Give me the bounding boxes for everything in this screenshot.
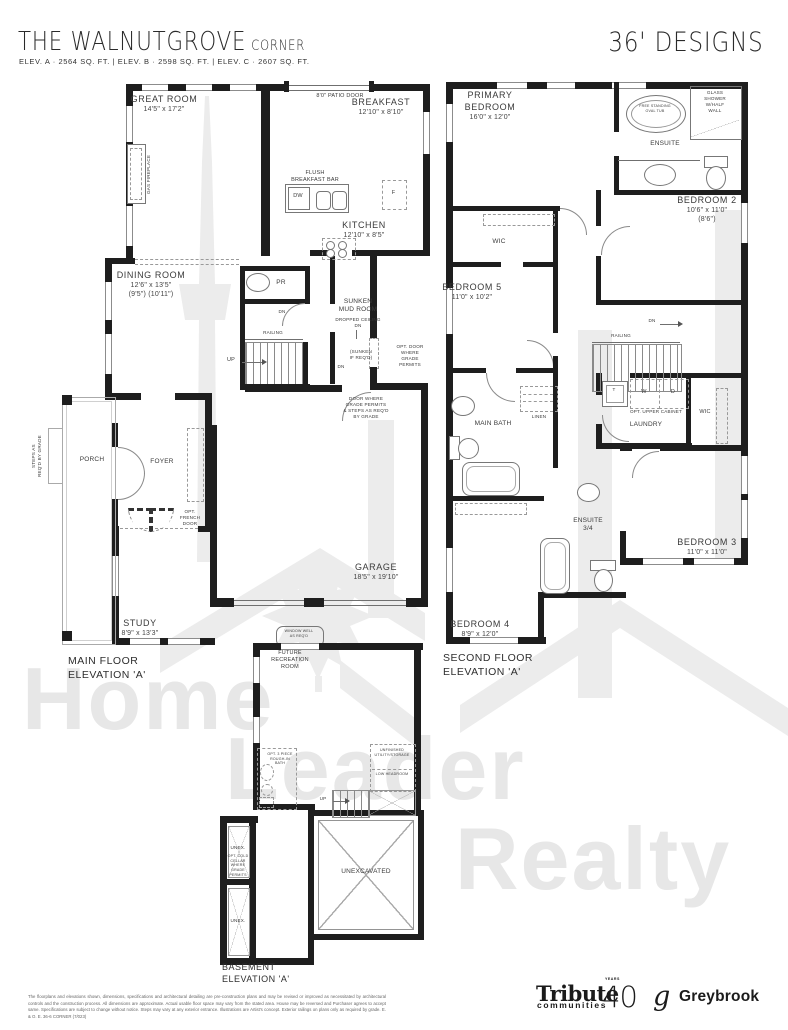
- garage-label: GARAGE: [341, 562, 411, 574]
- wic-primary-label: WIC: [482, 238, 516, 246]
- great-room-dims: 14'5" x 17'2": [124, 105, 204, 114]
- washer-label: W: [630, 389, 658, 396]
- dn-stair-label: DN: [330, 364, 352, 370]
- main-bath-sink: [451, 396, 475, 416]
- greybrook-mark: g: [653, 981, 670, 1012]
- line: [289, 85, 369, 86]
- fixture: [594, 569, 613, 592]
- bedroom4-closet: [455, 503, 527, 515]
- floorplan-sheet: Home Leader Realty THE WALNUTGROVECORNER…: [0, 0, 788, 1030]
- wall: [620, 531, 626, 564]
- oval-tub-label: FREE STANDING OVAL TUB: [628, 104, 682, 113]
- opt-bath-label: OPT. 3 PIECE ROUGH-IN BATH: [266, 752, 294, 766]
- window-marker: [741, 456, 748, 494]
- fixture: [338, 249, 347, 258]
- window-marker: [253, 717, 260, 743]
- wall: [261, 84, 270, 256]
- dishwasher-label: DW: [288, 193, 308, 200]
- wall: [406, 598, 428, 607]
- window-marker: [694, 558, 734, 565]
- line: [289, 90, 369, 91]
- future-rec-room-label: FUTURE RECREATION ROOM: [262, 650, 318, 671]
- window-marker: [142, 84, 168, 91]
- opt-french-door-label: OPT. FRENCH DOOR: [172, 509, 208, 527]
- bedroom5-dims: 11'0" x 10'2": [432, 293, 512, 302]
- window-marker: [643, 558, 683, 565]
- disclaimer-text: The floorplans and elevations shown, dim…: [28, 994, 386, 1021]
- bedroom2-dims-alt: (8'6"): [662, 215, 752, 224]
- dashed-line: [135, 259, 239, 260]
- fixture: [66, 401, 112, 641]
- stair-railing-line: [592, 342, 680, 343]
- wall: [446, 368, 486, 373]
- watermark-word-realty: Realty: [455, 808, 731, 910]
- great-room-label: GREAT ROOM: [124, 94, 204, 106]
- line: [324, 600, 406, 601]
- fixture: [544, 542, 566, 590]
- powder-room-label: PR: [261, 279, 301, 287]
- primary-bedroom-dims: 16'0" x 12'0": [455, 113, 525, 122]
- foyer-label: FOYER: [139, 458, 185, 466]
- railing-label: RAILING: [248, 330, 298, 336]
- porch-post: [62, 631, 72, 641]
- ensuite-label: ENSUITE: [638, 140, 692, 148]
- series-title: 36' DESIGNS: [609, 27, 764, 58]
- door-grade-label: DOOR WHERE GRADE PERMITS & STEPS AS REQ'…: [334, 396, 398, 420]
- dining-room-label: DINING ROOM: [108, 270, 194, 282]
- mud-room-label: SUNKEN MUD ROOM: [325, 298, 391, 315]
- elevation-sqft-line: ELEV. A · 2564 SQ. FT. | ELEV. B · 2598 …: [19, 57, 310, 66]
- kitchen-dims: 12'10" x 8'5": [334, 231, 394, 240]
- dashed-line: [372, 769, 412, 770]
- rect: [715, 210, 741, 558]
- unex-bottom-label: UNEX.: [222, 918, 254, 924]
- window-marker: [446, 104, 453, 142]
- plan-title: THE WALNUTGROVECORNER: [18, 27, 305, 57]
- wall: [330, 332, 335, 384]
- tribute-logo-sub: communities: [537, 1000, 607, 1010]
- wall: [374, 84, 430, 91]
- dashed-outline: [261, 784, 273, 796]
- wall: [596, 256, 601, 305]
- wic-bedroom3-label: WIC: [688, 409, 722, 416]
- island-stool: [332, 191, 347, 210]
- fixture: [326, 249, 335, 258]
- bedroom3-dims: 11'0" x 11'0": [662, 548, 752, 557]
- line: [324, 605, 406, 606]
- low-headroom-area: [368, 790, 416, 816]
- wall: [596, 424, 602, 445]
- bedroom5-label: BEDROOM 5: [432, 282, 512, 294]
- wall: [245, 385, 342, 392]
- study-dims: 8'9" x 13'3": [110, 629, 170, 638]
- main-stairs: [245, 342, 305, 386]
- basement-caption: BASEMENT ELEVATION 'A': [222, 962, 342, 985]
- window-marker: [105, 334, 112, 374]
- utility-label: UNFINISHED UTILITY/STORAGE: [368, 748, 416, 757]
- dashed-outline: [130, 148, 142, 200]
- wall: [330, 256, 335, 304]
- wall: [370, 383, 428, 390]
- fixture: [466, 466, 516, 492]
- kitchen-label: KITCHEN: [334, 220, 394, 232]
- breakfast-dims: 12'10" x 8'10": [346, 108, 416, 117]
- low-headroom-label: LOW HEADROOM: [368, 772, 416, 777]
- unexcavated-label: UNEXCAVATED: [334, 868, 398, 876]
- fixture: [458, 438, 479, 459]
- dn-hall-label: DN: [272, 309, 292, 315]
- foyer-closet: [187, 428, 204, 502]
- rect: [368, 420, 394, 618]
- up-arrow: [262, 359, 267, 365]
- gas-fireplace-label: GAS FIREPLACE: [146, 146, 152, 202]
- plan-title-suffix: CORNER: [251, 38, 305, 54]
- dn-mud-label: DN: [328, 323, 388, 329]
- basement-stairs: [332, 790, 370, 818]
- up-label: UP: [222, 357, 240, 364]
- polygon: [199, 162, 215, 284]
- primary-wic-rod: [483, 214, 555, 226]
- fixture: [706, 166, 726, 190]
- ensuite34-label: ENSUITE 3/4: [566, 517, 610, 534]
- wall: [374, 250, 430, 256]
- wall: [304, 598, 324, 607]
- wall: [220, 816, 227, 965]
- window-marker: [230, 84, 256, 91]
- dashed-line: [135, 264, 239, 265]
- breakfast-bar-label: FLUSH BREAKFAST BAR: [283, 170, 347, 184]
- window-marker: [547, 82, 575, 89]
- laundry-tub-label: T: [602, 387, 626, 393]
- line: [242, 362, 262, 363]
- cold-cellar-label: OPT. COLD CELLAR WHERE GRADE PERMITS: [222, 854, 254, 877]
- plan-title-text: THE WALNUTGROVE: [18, 27, 246, 57]
- linen-label: LINEN: [516, 414, 562, 420]
- basement-up-arrow: [345, 798, 350, 804]
- wall: [596, 300, 748, 305]
- study-label: STUDY: [110, 618, 170, 630]
- dn-label: DN: [641, 318, 663, 324]
- main-bath-label: MAIN BATH: [458, 420, 528, 428]
- line: [356, 330, 357, 339]
- line: [660, 324, 678, 325]
- wall: [421, 383, 428, 605]
- wall: [596, 190, 601, 226]
- opt-door-grade-label: OPT. DOOR WHERE GRADE PERMITS: [386, 344, 434, 368]
- linen-shelves: [520, 386, 558, 412]
- rect: [315, 676, 322, 692]
- stair-railing-line: [245, 339, 303, 340]
- wall: [249, 816, 256, 965]
- wall: [446, 206, 560, 211]
- wall: [620, 445, 632, 451]
- window-marker: [741, 500, 748, 538]
- wall: [303, 342, 308, 384]
- glass-shower-label: GLASS SHOWER W/HALF WALL: [692, 90, 738, 114]
- sunken-if-reqd-label: (SUNKEN IF REQ'D): [338, 349, 384, 361]
- fridge-label: F: [385, 190, 402, 197]
- steps-grade-label: STEPS AS REQ'D BY GRADE: [31, 424, 43, 488]
- ensuite-sink: [644, 164, 676, 186]
- bedroom4-label: BEDROOM 4: [435, 619, 525, 631]
- line: [618, 160, 700, 161]
- wall: [553, 267, 558, 333]
- wall: [446, 496, 544, 501]
- wall: [523, 262, 556, 267]
- dashed-outline: [259, 797, 274, 808]
- window-marker: [253, 657, 260, 683]
- railing-label-2f: RAILING: [596, 333, 646, 339]
- laundry-label: LAUNDRY: [611, 421, 681, 429]
- island-stool: [316, 191, 331, 210]
- window-marker: [126, 206, 133, 246]
- ensuite34-sink: [577, 483, 600, 502]
- window-marker: [446, 548, 453, 592]
- bedroom4-dims: 8'9" x 12'0": [435, 630, 525, 639]
- main-floor-caption: MAIN FLOOR ELEVATION 'A': [68, 655, 188, 682]
- unex-top-label: UNEX.: [222, 845, 254, 851]
- wall: [516, 368, 558, 373]
- wall: [660, 445, 748, 451]
- dashed-outline: [260, 764, 274, 781]
- window-marker: [130, 638, 160, 645]
- wall: [240, 266, 310, 271]
- bedroom2-label: BEDROOM 2: [662, 195, 752, 207]
- porch-label: PORCH: [70, 456, 114, 464]
- wall: [274, 643, 279, 650]
- basement-up-label: UP: [314, 796, 332, 802]
- bedroom2-dims: 10'6" x 11'0": [662, 206, 752, 215]
- primary-bedroom-label: PRIMARY BEDROOM: [455, 90, 525, 113]
- wall: [319, 643, 324, 650]
- wall: [446, 262, 501, 267]
- greybrook-logo: Greybrook: [679, 988, 759, 1006]
- window-marker: [186, 84, 212, 91]
- dn-arrow: [678, 321, 683, 327]
- wall: [308, 937, 314, 965]
- window-marker: [281, 643, 319, 650]
- line: [234, 605, 304, 606]
- wall: [538, 596, 544, 643]
- line: [333, 801, 345, 802]
- window-marker: [168, 638, 200, 645]
- window-marker: [497, 82, 527, 89]
- second-floor-caption: SECOND FLOOR ELEVATION 'A': [443, 652, 573, 679]
- opt-upper-cabinet-label: OPT. UPPER CABINET: [620, 409, 692, 415]
- wall: [423, 84, 430, 256]
- dashed-line: [523, 401, 553, 402]
- breakfast-label: BREAKFAST: [346, 97, 416, 109]
- porch-post: [62, 395, 72, 405]
- window-well-label: WINDOW WELL AS REQ'D: [277, 629, 321, 638]
- dining-room-dims-alt: (9'5") (10'11"): [108, 290, 194, 299]
- dining-room-dims: 12'6" x 13'5": [108, 281, 194, 290]
- garage-dims: 18'5" x 19'10": [341, 573, 411, 582]
- wall: [614, 82, 619, 132]
- diagonal-line: [691, 120, 739, 137]
- dryer-label: D: [659, 389, 687, 396]
- dashed-line: [523, 394, 553, 395]
- line: [234, 600, 304, 601]
- tribute-40-mark: 40: [602, 980, 637, 1014]
- porch-steps: [48, 428, 63, 484]
- window-marker: [423, 112, 430, 154]
- bedroom3-label: BEDROOM 3: [662, 537, 752, 549]
